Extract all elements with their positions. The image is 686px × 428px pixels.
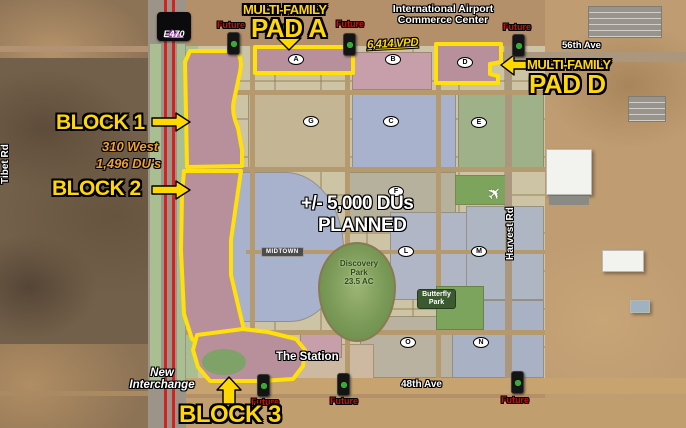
interchange-label: New Interchange (118, 367, 206, 391)
parcel-marker-g: G (303, 116, 319, 127)
future-signal-label: Future (217, 21, 245, 30)
block3-title: BLOCK 3 (179, 402, 281, 427)
e470-shield-label: E470 (163, 30, 184, 39)
56th-ave-label: 56th Ave (562, 41, 601, 51)
commerce-center-line2: Commerce Center (385, 15, 501, 26)
block1-units: 1,496 DU's (96, 157, 161, 171)
site-plan-map: E470 Future Future Future Future Future … (0, 0, 686, 428)
traffic-light-icon (227, 32, 240, 55)
future-signal-label: Future (330, 397, 358, 406)
pad-d-arrow (501, 55, 530, 75)
parcel-marker-d: D (457, 57, 473, 68)
traffic-light-icon (343, 33, 356, 56)
pad-a-outline (255, 47, 353, 73)
parcel-marker-a: A (288, 54, 304, 65)
butterfly-park-label: Butterfly Park (417, 289, 456, 309)
harvest-rd-label: Harvest Rd (506, 192, 517, 260)
parcel-marker-e: E (471, 117, 487, 128)
pad-d-title: PAD D (529, 71, 605, 98)
future-signal-label: Future (336, 20, 364, 29)
block1-title: BLOCK 1 (56, 112, 145, 134)
station-pond (202, 349, 246, 375)
station-label: The Station (276, 351, 339, 363)
parcel-marker-l: L (398, 246, 414, 257)
parcel-marker-n: N (473, 337, 489, 348)
parcel-marker-b: B (385, 54, 401, 65)
planned-dus-line2: PLANNED (318, 216, 406, 236)
block2-title: BLOCK 2 (52, 178, 141, 200)
traffic-light-icon (511, 371, 524, 394)
traffic-light-icon (337, 373, 350, 396)
discovery-park-label: Discovery Park 23.5 AC (333, 259, 385, 287)
parcel-marker-m: M (471, 246, 487, 257)
pad-a-title: PAD A (251, 15, 327, 42)
commerce-center-label: International Airport Commerce Center (385, 4, 501, 26)
traffic-light-icon (512, 34, 525, 57)
block1-outline (185, 51, 242, 167)
traffic-light-icon (257, 374, 270, 397)
parcel-marker-o: O (400, 337, 416, 348)
planned-dus-line1: +/- 5,000 DUs (301, 194, 413, 214)
block2-outline (181, 171, 245, 354)
midtown-label: MIDTOWN (261, 247, 304, 257)
tibet-rd-label: Tibet Rd (1, 126, 12, 184)
block1-project: 310 West (102, 140, 158, 154)
future-signal-label: Future (503, 23, 531, 32)
parcel-marker-c: C (383, 116, 399, 127)
future-signal-label: Future (501, 396, 529, 405)
48th-ave-label: 48th Ave (401, 380, 442, 391)
e470-shield: E470 (157, 12, 191, 41)
